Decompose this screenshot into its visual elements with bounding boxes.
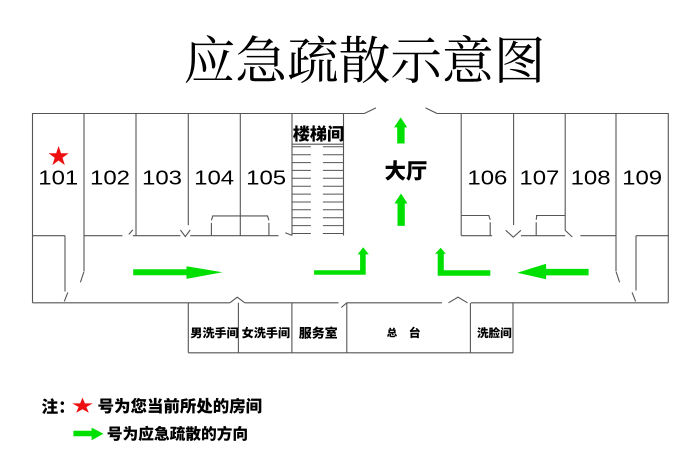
- svg-text:109: 109: [622, 167, 662, 190]
- svg-text:104: 104: [194, 167, 234, 190]
- svg-text:103: 103: [142, 167, 182, 190]
- svg-text:107: 107: [519, 167, 559, 190]
- svg-text:102: 102: [90, 167, 130, 190]
- svg-text:108: 108: [571, 167, 611, 190]
- svg-text:105: 105: [246, 167, 286, 190]
- svg-text:106: 106: [467, 167, 507, 190]
- svg-text:101: 101: [38, 167, 78, 190]
